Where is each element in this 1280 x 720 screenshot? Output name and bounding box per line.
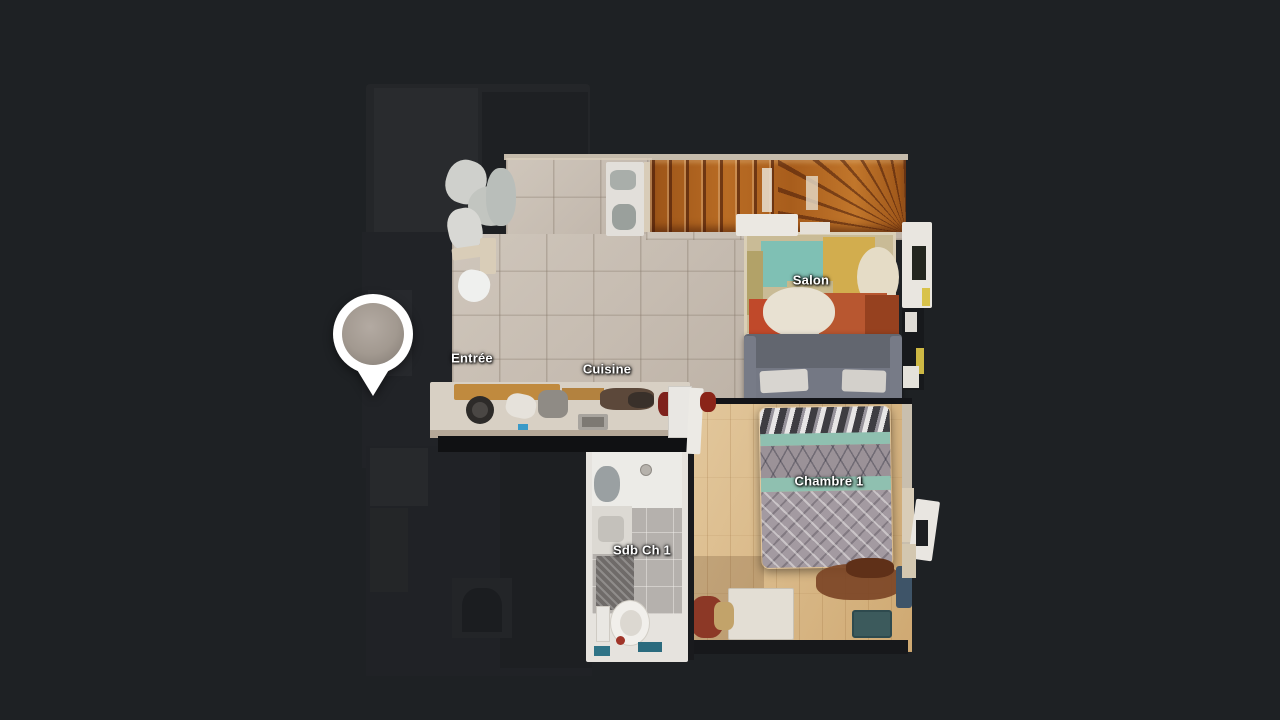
salon-door-white-bit2 [903, 366, 919, 388]
room-label-chambre1: Chambre 1 [795, 474, 864, 489]
toilet-tank [596, 606, 610, 642]
bathroom-red-dot [616, 636, 625, 645]
entry-blob-4 [486, 168, 516, 226]
salon-window-yellow [922, 288, 930, 306]
sofa-backrest [746, 334, 900, 370]
under-stairs-cabinet2 [800, 222, 830, 234]
bathroom-blue-item [594, 646, 610, 656]
kitchen-counter-shadow [438, 436, 690, 452]
chambre-tan-bag [714, 602, 734, 630]
pin-inner-disc [342, 303, 404, 365]
floorplan-canvas[interactable]: Entrée Cuisine Salon Chambre 1 Sdb Ch 1 [0, 0, 1280, 720]
stairs-gap-highlight2 [806, 176, 818, 210]
chambre-bottom-wall [686, 640, 908, 654]
sofa-pillow-right [842, 369, 887, 393]
chambre-brown-pile-dark [846, 558, 894, 578]
salon-door-white-bit [905, 312, 917, 332]
duvet-bottom-band [761, 490, 892, 568]
dark-room-bl-shadow [500, 452, 592, 668]
sofa-pillow-left [759, 369, 808, 393]
rug-patch-white-blob [763, 287, 835, 337]
under-stairs-cabinet [736, 214, 798, 236]
salon-window-dark [912, 246, 926, 280]
kitchen-counter [430, 382, 690, 438]
door-red-item [700, 392, 716, 412]
hall-closet-patch2 [612, 204, 636, 230]
room-label-entree: Entrée [451, 351, 493, 366]
bathroom-teal-item [638, 642, 662, 652]
sofa-armrest-left [744, 336, 756, 404]
chambre-window-dark [916, 520, 928, 546]
dark-room-bl-alcove-arch [462, 588, 502, 632]
cutting-board2 [562, 388, 604, 400]
shower-drain [640, 464, 652, 476]
position-pin[interactable] [330, 292, 416, 402]
chambre-window-sill [902, 544, 916, 578]
shower-fixture [594, 466, 620, 502]
room-label-sdb-ch1: Sdb Ch 1 [613, 543, 671, 558]
floorplan-viewer: Entrée Cuisine Salon Chambre 1 Sdb Ch 1 [0, 0, 1280, 720]
sofa-armrest-right [890, 336, 902, 404]
chambre-dresser [728, 588, 794, 640]
dark-room-bl-patch2 [370, 508, 408, 592]
kitchen-pan-inner [472, 402, 488, 418]
kitchen-pot [538, 390, 568, 418]
sofa [744, 334, 902, 408]
room-label-salon: Salon [793, 273, 829, 288]
entry-door-frame-v [480, 238, 496, 274]
toilet-bowl-inner [620, 610, 642, 636]
room-label-cuisine: Cuisine [583, 362, 631, 377]
dark-room-bl-patch1 [370, 448, 428, 506]
tile-floor-hall [452, 234, 748, 404]
bathroom-sink-bowl [598, 516, 624, 542]
kitchen-sink-basin [582, 417, 604, 427]
rug-patch-rust-dark [865, 295, 899, 339]
kitchen-dark-blob [628, 392, 654, 408]
chambre-teal-case [852, 610, 892, 638]
stairs-gap-highlight [762, 168, 772, 212]
hall-closet-patch1 [610, 170, 636, 190]
